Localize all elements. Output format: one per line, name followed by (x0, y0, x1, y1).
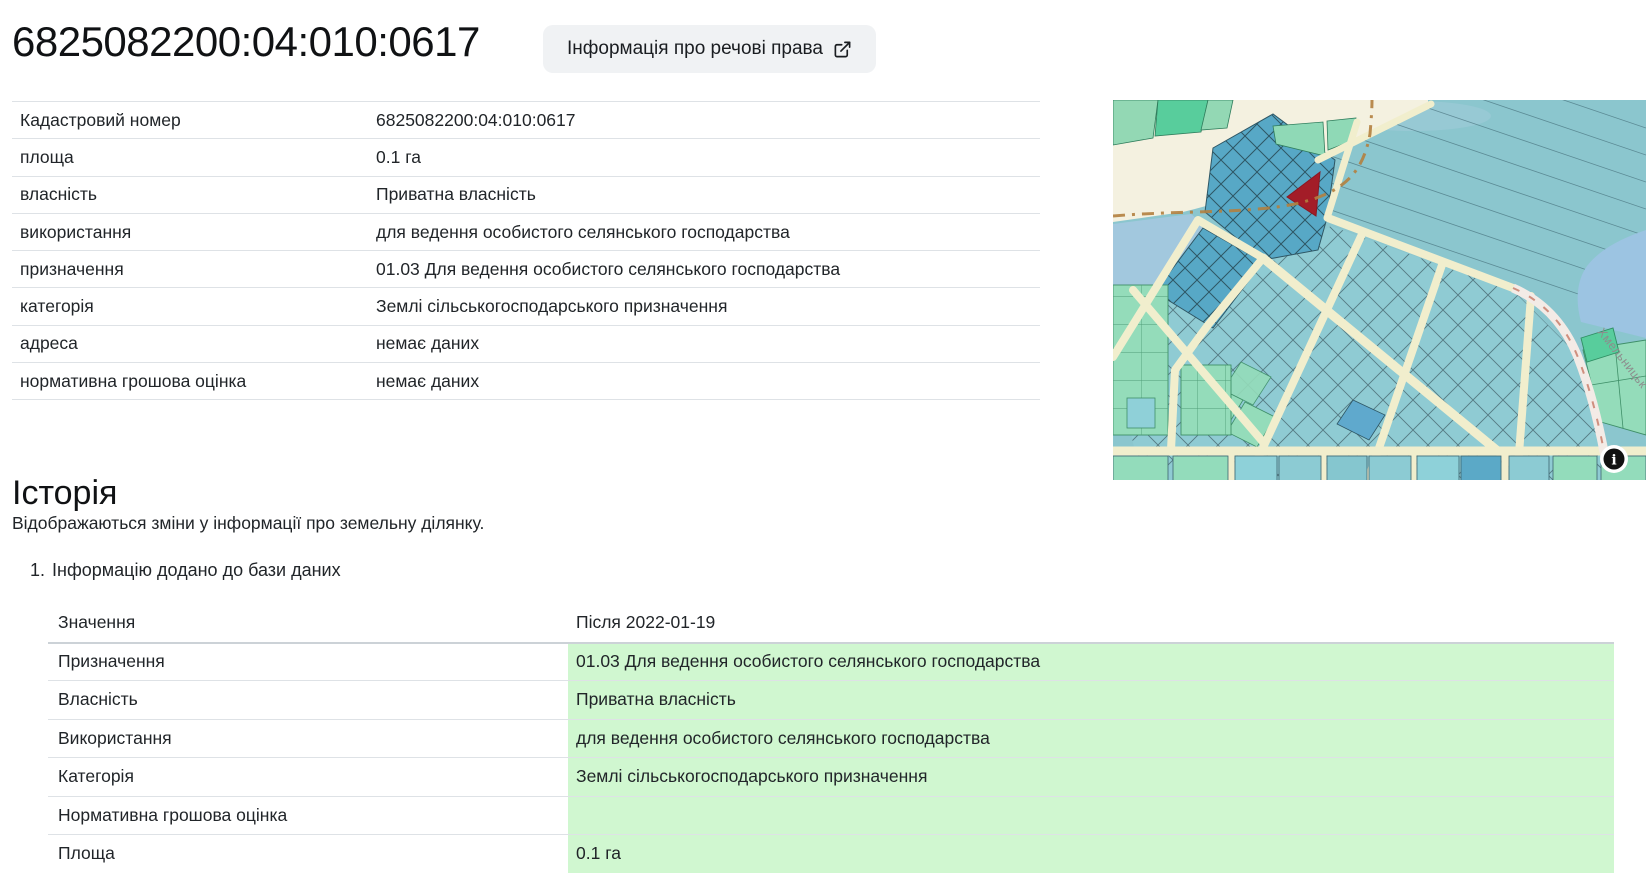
cadastral-map-canvas: Хмельницьк i (1113, 100, 1646, 480)
table-row: Категорія Землі сільськогосподарського п… (48, 757, 1614, 796)
row-value: 01.03 Для ведення особистого селянського… (376, 259, 1040, 280)
info-icon-glyph: i (1611, 453, 1616, 469)
row-value: для ведення особистого селянського госпо… (376, 222, 1040, 243)
row-value-highlighted: 0.1 га (568, 835, 1614, 873)
external-link-icon (833, 40, 852, 59)
rights-info-button[interactable]: Інформація про речові права (543, 25, 876, 73)
row-value-highlighted: 01.03 Для ведення особистого селянського… (568, 644, 1614, 681)
row-value: немає даних (376, 371, 1040, 392)
table-row: призначення 01.03 Для ведення особистого… (12, 250, 1040, 287)
row-label: Використання (48, 720, 568, 758)
map-layers: Хмельницьк i (1113, 100, 1646, 480)
row-label: Значення (48, 603, 568, 642)
row-label: Площа (48, 835, 568, 873)
row-value-highlighted: Приватна власність (568, 681, 1614, 719)
row-label: Кадастровий номер (12, 110, 376, 131)
table-row: використання для ведення особистого селя… (12, 213, 1040, 250)
row-value-highlighted: Землі сільськогосподарського призначення (568, 758, 1614, 796)
table-row: нормативна грошова оцінка немає даних (12, 362, 1040, 399)
page-title: 6825082200:04:010:0617 (12, 18, 480, 66)
row-label: Призначення (48, 644, 568, 681)
table-row: Власність Приватна власність (48, 680, 1614, 719)
history-entry-title: 1. Інформацію додано до бази даних (30, 560, 341, 581)
parcel-info-table: Кадастровий номер 6825082200:04:010:0617… (12, 101, 1040, 400)
row-label: площа (12, 147, 376, 168)
table-row: Кадастровий номер 6825082200:04:010:0617 (12, 101, 1040, 138)
row-value: 6825082200:04:010:0617 (376, 110, 1040, 131)
map-bottom-parcels (1113, 456, 1646, 480)
table-row: власність Приватна власність (12, 176, 1040, 213)
row-value: Землі сільськогосподарського призначення (376, 296, 1040, 317)
row-label: власність (12, 184, 376, 205)
table-row: категорія Землі сільськогосподарського п… (12, 287, 1040, 324)
row-label: адреса (12, 333, 376, 354)
history-entry-number: 1. (30, 560, 45, 581)
cadastral-map[interactable]: Хмельницьк i (1113, 100, 1646, 480)
history-entry-label: Інформацію додано до бази даних (52, 560, 341, 581)
row-value: 0.1 га (376, 147, 1040, 168)
row-label: Нормативна грошова оцінка (48, 797, 568, 835)
row-label: Категорія (48, 758, 568, 796)
history-heading: Історія (12, 474, 117, 513)
row-label: категорія (12, 296, 376, 317)
table-row: Значення Після 2022-01-19 (48, 603, 1614, 642)
row-value: немає даних (376, 333, 1040, 354)
row-value-highlighted: для ведення особистого селянського госпо… (568, 720, 1614, 758)
row-label: використання (12, 222, 376, 243)
row-label: призначення (12, 259, 376, 280)
rights-info-button-label: Інформація про речові права (567, 38, 823, 60)
table-row: площа 0.1 га (12, 138, 1040, 175)
history-subtitle: Відображаються зміни у інформації про зе… (12, 513, 484, 534)
row-value: Приватна власність (376, 184, 1040, 205)
row-label: Власність (48, 681, 568, 719)
history-table: Значення Після 2022-01-19 Призначення 01… (48, 603, 1614, 873)
row-label: нормативна грошова оцінка (12, 371, 376, 392)
row-value: Після 2022-01-19 (568, 603, 1614, 642)
cadastral-parcel-page: { "header": { "title": "6825082200:04:01… (0, 0, 1646, 873)
info-icon[interactable]: i (1600, 445, 1628, 473)
table-row: Площа 0.1 га (48, 834, 1614, 873)
row-value-highlighted (568, 797, 1614, 835)
table-row: адреса немає даних (12, 325, 1040, 362)
table-row: Нормативна грошова оцінка (48, 796, 1614, 835)
table-row: Використання для ведення особистого селя… (48, 719, 1614, 758)
table-row: Призначення 01.03 Для ведення особистого… (48, 642, 1614, 681)
